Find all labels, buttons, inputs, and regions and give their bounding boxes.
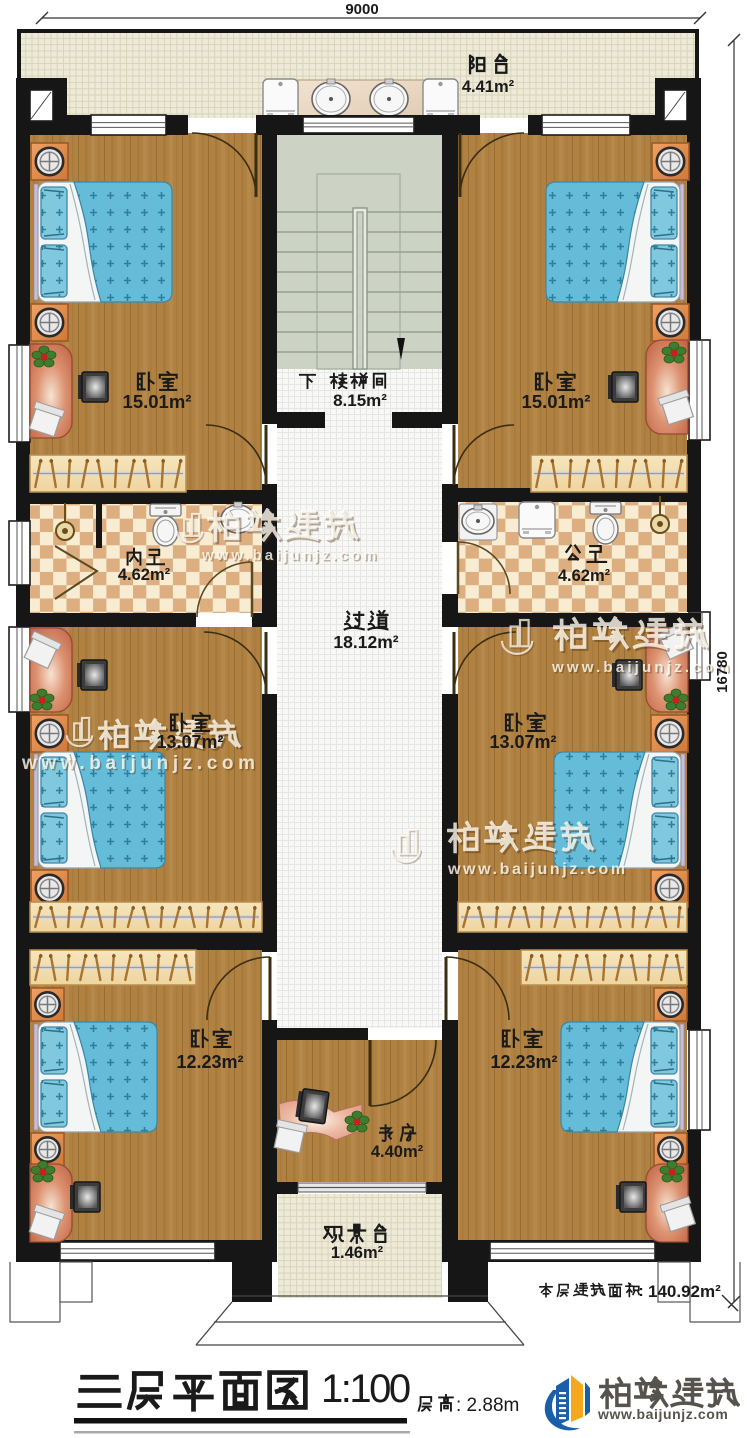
svg-text:18.12m²: 18.12m² <box>333 632 398 652</box>
svg-text:www.baijunjz.com: www.baijunjz.com <box>447 861 628 878</box>
svg-text:12.23m²: 12.23m² <box>176 1052 243 1072</box>
svg-text:www.baijunjz.com: www.baijunjz.com <box>551 659 733 676</box>
svg-text:www.baijunjz.com: www.baijunjz.com <box>597 1406 728 1422</box>
svg-text:4.62m²: 4.62m² <box>558 567 611 585</box>
svg-text:4.40m²: 4.40m² <box>371 1143 424 1161</box>
svg-text:9000: 9000 <box>345 1 378 18</box>
svg-text:8.15m²: 8.15m² <box>333 391 387 410</box>
svg-text:13.07m²: 13.07m² <box>489 732 556 752</box>
svg-text:16780: 16780 <box>714 651 731 693</box>
svg-text:www.baijunjz.com: www.baijunjz.com <box>21 753 260 774</box>
svg-text:4.41m²: 4.41m² <box>462 78 515 96</box>
svg-text::: : <box>638 1283 643 1300</box>
svg-text:www.baijunjz.com: www.baijunjz.com <box>201 547 379 564</box>
svg-text:12.23m²: 12.23m² <box>490 1052 557 1072</box>
svg-text:140.92m²: 140.92m² <box>648 1282 721 1301</box>
svg-text:15.01m²: 15.01m² <box>522 391 591 412</box>
svg-text:: 2.88m: : 2.88m <box>456 1395 519 1416</box>
svg-text:1:100: 1:100 <box>321 1367 410 1411</box>
svg-text:13.07m²: 13.07m² <box>156 732 223 752</box>
svg-text:1.46m²: 1.46m² <box>331 1244 384 1262</box>
svg-text:4.62m²: 4.62m² <box>118 566 171 584</box>
svg-text:15.01m²: 15.01m² <box>123 391 192 412</box>
